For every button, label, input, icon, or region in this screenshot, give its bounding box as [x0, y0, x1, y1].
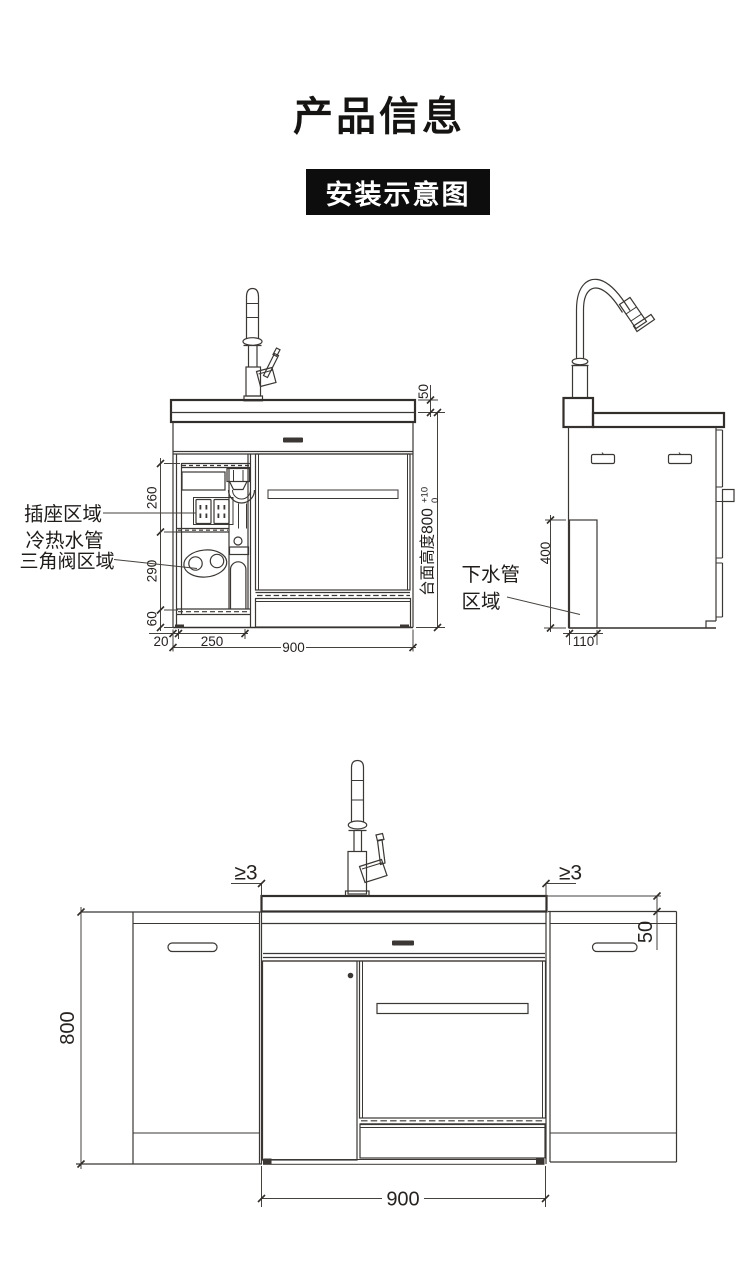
dishwasher-handle-slot [268, 490, 398, 499]
label-hot-cold-pipes: 冷热水管 [26, 530, 104, 552]
dim-counter-drop: 50 [547, 893, 662, 951]
adjacent-cabinet-left [76, 912, 262, 1164]
dim-250: 250 [201, 634, 224, 649]
dim-20: 20 [153, 634, 168, 649]
gap-left-text: ≥3 [234, 862, 257, 885]
dim-left-chain: 260 290 60 [145, 458, 181, 631]
faucet-side-icon [564, 279, 655, 427]
brand-logo-mark-2 [392, 941, 414, 946]
drain-zone-box [570, 520, 598, 628]
dim-260: 260 [145, 487, 160, 510]
dim-800: 800 [57, 1011, 79, 1044]
label-drain-line1: 下水管 [462, 564, 521, 586]
page-title: 产品信息 [0, 84, 750, 142]
faucet-front-icon [243, 289, 280, 401]
dim-bottom-chain: 20 250 900 [149, 629, 417, 655]
front-annotations: 插座区域 冷热水管 三角阀区域 [20, 504, 198, 573]
dim-right-side: 50 台面高度800 +10 0 [416, 384, 445, 631]
label-socket-area: 插座区域 [24, 504, 102, 526]
left-door [263, 961, 358, 1160]
dim-total-width: 900 [258, 1166, 549, 1211]
dim-50-installed: 50 [635, 921, 657, 943]
dim-gap-left: ≥3 [231, 862, 265, 898]
side-elevation-drawing: 400 110 下水管 区域 [455, 270, 750, 680]
side-annotations: 下水管 区域 [462, 564, 581, 615]
brand-logo-mark [283, 438, 303, 443]
dishwasher-handle-slot-2 [377, 1004, 528, 1014]
service-compartment [177, 454, 255, 628]
dim-50-front: 50 [416, 384, 431, 399]
vent-slot-2 [669, 455, 692, 464]
faucet-installed-icon [346, 761, 388, 897]
dim-110: 110 [573, 634, 595, 649]
counter-height-tol-lower: 0 [430, 498, 441, 503]
dim-gap-right: ≥3 [543, 862, 583, 898]
label-drain-line2: 区域 [462, 591, 501, 613]
countertop-front [171, 400, 415, 454]
section-badge: 安装示意图 [306, 169, 490, 215]
front-elevation-drawing: 260 290 60 20 250 900 [0, 270, 460, 680]
dim-drain-depth: 110 [563, 630, 603, 649]
dim-400: 400 [538, 542, 553, 565]
dim-drain-height: 400 [538, 515, 566, 632]
valve-oval-icon [183, 548, 228, 579]
dim-60: 60 [145, 611, 160, 626]
dim-cabinet-height: 800 [57, 907, 85, 1169]
power-outlets-icon [194, 498, 234, 525]
counter-height-tol-upper: +10 [420, 487, 431, 503]
counter-height-label: 台面高度800 [419, 508, 437, 596]
product-info-page: 产品信息 安装示意图 [0, 0, 750, 1267]
handle-pill-left [168, 943, 217, 952]
dim-900-front: 900 [282, 640, 305, 655]
dishwasher-door [360, 961, 546, 1118]
dishwasher-front [256, 454, 411, 627]
door-handle-profile [723, 490, 735, 502]
cabinet-side-profile [569, 413, 735, 628]
gap-right-text: ≥3 [559, 862, 582, 885]
handle-pill-right [593, 943, 638, 952]
door-knob [348, 973, 354, 979]
installed-front-drawing: ≥3 ≥3 50 800 [0, 750, 750, 1220]
main-unit-front [262, 896, 547, 1165]
vent-slot-1 [592, 455, 615, 464]
label-valve-area: 三角阀区域 [20, 551, 115, 573]
dim-900-installed: 900 [386, 1189, 419, 1211]
